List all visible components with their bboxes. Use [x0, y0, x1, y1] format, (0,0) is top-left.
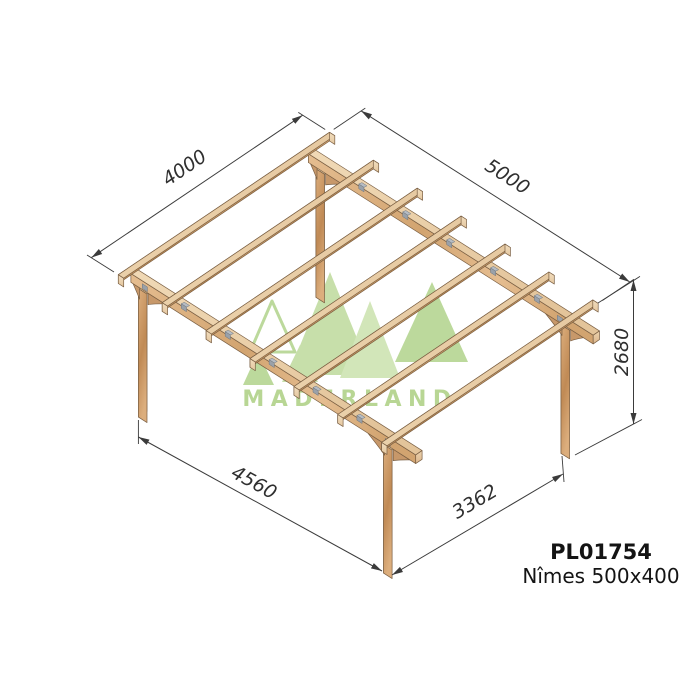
product-label-group: PL01754 Nîmes 500x400: [522, 540, 679, 588]
post-left-front-face: [138, 289, 147, 423]
rafter-3-end-cap: [417, 188, 422, 200]
pergola-product-drawing: MADERLAND 40005000268045603362 PL01754 N…: [0, 0, 700, 700]
rafter-2-top-face: [162, 160, 379, 306]
post-right-front-face: [561, 325, 570, 459]
product-name-text: Nîmes 500x400: [522, 564, 679, 588]
rafter-7-end-cap: [593, 300, 598, 312]
rafter-4-end-cap: [461, 216, 466, 228]
extension-line: [87, 255, 114, 272]
post-right: [561, 319, 578, 459]
dimension-label-roof-depth: 4000: [158, 145, 210, 190]
product-code-text: PL01754: [550, 540, 652, 564]
dimension-roof-depth: 4000: [87, 112, 325, 272]
rafter-6-end-cap: [549, 272, 554, 284]
post-front-front-face: [384, 445, 393, 579]
extension-line: [334, 108, 366, 129]
extension-line: [562, 456, 564, 482]
dimension-label-front-spacing: 4560: [227, 461, 280, 504]
extension-line: [575, 420, 642, 456]
rafter-2-end-cap: [373, 160, 378, 172]
dimension-side-spacing: 3362: [392, 456, 564, 575]
rafter-5-end-cap: [505, 244, 510, 256]
post-back-front-face: [316, 169, 325, 303]
technical-drawing-canvas: MADERLAND 40005000268045603362 PL01754 N…: [0, 0, 700, 700]
rafter-1-end-cap: [330, 132, 335, 144]
dimension-front-spacing: 4560: [138, 420, 382, 571]
dimension-height: 2680: [575, 276, 642, 455]
dimension-label-height: 2680: [611, 328, 633, 376]
rafter-1-top-face: [118, 132, 334, 278]
dimension-line: [138, 437, 382, 571]
dimension-label-side-spacing: 3362: [449, 480, 502, 524]
